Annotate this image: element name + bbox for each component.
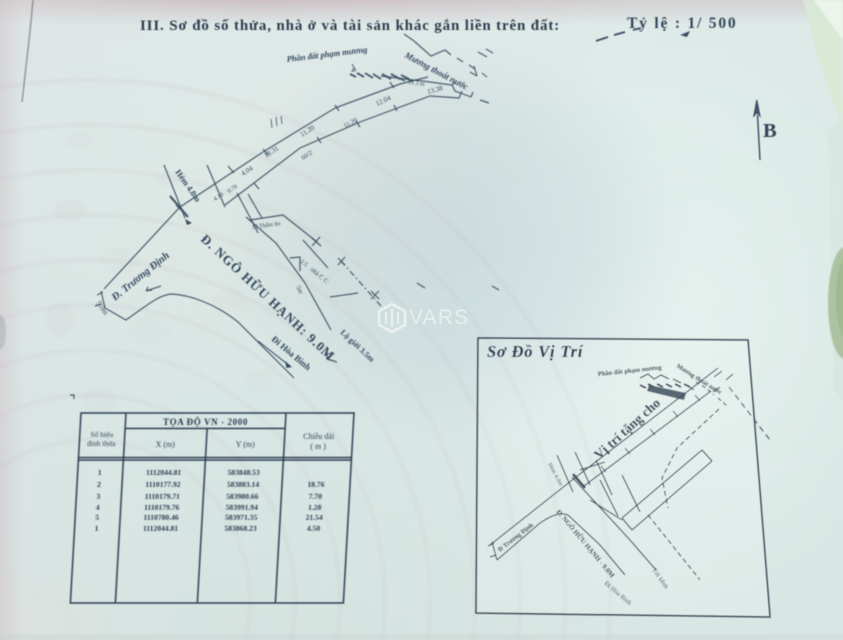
svg-text:583991.94: 583991.94 (225, 503, 258, 512)
svg-text:TỌA ĐỘ VN - 2000: TỌA ĐỘ VN - 2000 (163, 417, 248, 427)
svg-text:Tỷ lệ : 1/ 500: Tỷ lệ : 1/ 500 (627, 15, 737, 32)
svg-text:4.50: 4.50 (307, 524, 321, 533)
svg-text:VARS: VARS (409, 306, 469, 329)
svg-text:4: 4 (96, 503, 100, 512)
svg-text:21.54: 21.54 (305, 513, 323, 522)
svg-text:1110780.46: 1110780.46 (143, 513, 179, 522)
svg-text:18.76: 18.76 (307, 480, 325, 489)
svg-text:( m ): ( m ) (310, 442, 326, 451)
svg-text:7.70: 7.70 (308, 492, 322, 501)
svg-text:1110179.71: 1110179.71 (144, 492, 180, 501)
svg-text:Số hiệu: Số hiệu (90, 430, 113, 439)
svg-text:B: B (763, 120, 777, 142)
svg-text:1.28: 1.28 (308, 503, 322, 512)
svg-text:583883.14: 583883.14 (227, 480, 260, 489)
svg-text:3: 3 (96, 492, 100, 501)
svg-text:1112044.81: 1112044.81 (146, 468, 182, 477)
svg-text:583971.35: 583971.35 (225, 513, 258, 522)
svg-text:Chiều dài: Chiều dài (303, 432, 335, 441)
svg-text:đỉnh thửa: đỉnh thửa (87, 439, 117, 448)
svg-text:1110177.92: 1110177.92 (145, 480, 181, 489)
svg-text:1: 1 (98, 468, 102, 477)
svg-text:III. Sơ đồ số thửa, nhà ở và t: III. Sơ đồ số thửa, nhà ở và tài sản khá… (140, 18, 560, 34)
svg-text:2: 2 (97, 480, 101, 489)
svg-text:Y (m): Y (m) (235, 440, 255, 449)
svg-text:583848.53: 583848.53 (227, 468, 260, 477)
svg-text:Sơ Đồ Vị Trí: Sơ Đồ Vị Trí (487, 342, 584, 361)
svg-text:1110179.76: 1110179.76 (144, 503, 180, 512)
svg-text:5: 5 (95, 513, 99, 522)
svg-text:1: 1 (94, 524, 98, 533)
svg-text:583868.23: 583868.23 (224, 524, 257, 533)
svg-text:X (m): X (m) (155, 440, 175, 449)
svg-text:1112044.81: 1112044.81 (143, 524, 179, 533)
svg-text:583980.66: 583980.66 (226, 492, 259, 501)
